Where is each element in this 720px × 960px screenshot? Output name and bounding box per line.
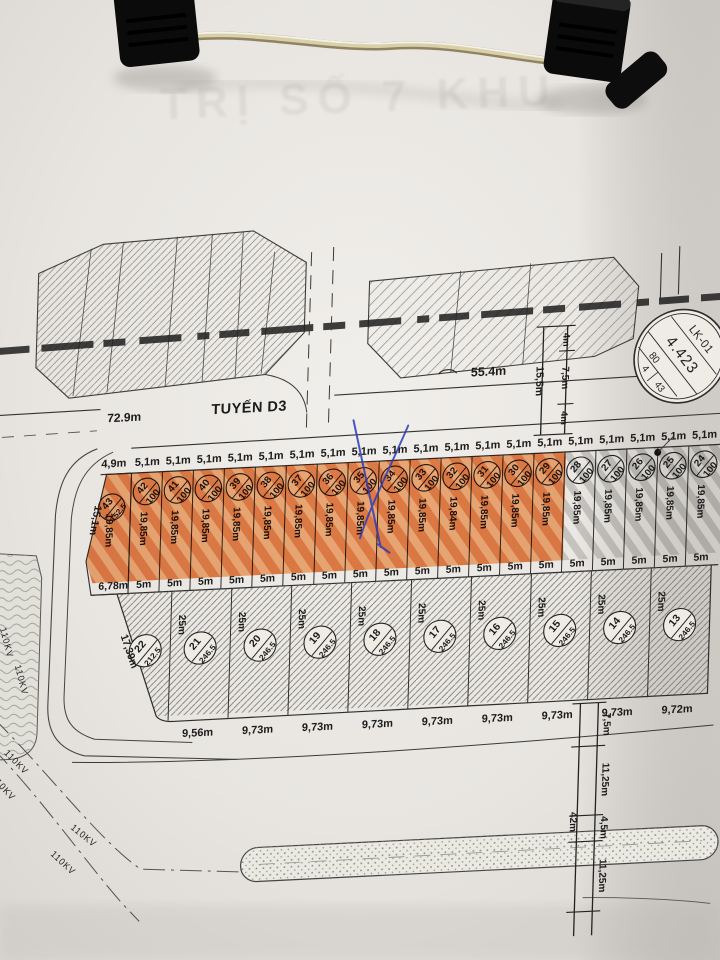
plot-bottom-label: 9,73m — [422, 715, 454, 729]
gray-highlight-streaks — [563, 444, 720, 560]
clip-right-pad — [542, 0, 631, 83]
plot-width-label: 5,1m — [351, 445, 377, 458]
bottom-shadow — [0, 905, 720, 960]
plot-depth-label: 25m — [655, 591, 667, 612]
plot-bottom-label: 9,72m — [661, 703, 693, 717]
photo-of-site-plan: TRỊ SỐ 7 KHU 72.9m TUYẾN D3 55 — [0, 0, 720, 960]
plot-width-label: 4,9m — [101, 457, 127, 470]
plot-depth-label: 25m — [176, 615, 188, 636]
east-seg-label: 4,5m — [597, 816, 609, 839]
plot-width-label: 5,1m — [475, 439, 501, 452]
plot-width-label: 5,1m — [537, 436, 563, 449]
plot-width-label: 5,1m — [197, 453, 223, 466]
clip-left-pad — [112, 0, 200, 68]
plot-width-label: 5,1m — [692, 428, 718, 441]
plot-bottom-label: 9,73m — [242, 724, 274, 738]
road-length-label: 72.9m — [107, 410, 141, 426]
plot-width-label: 5,1m — [599, 433, 625, 446]
plan-canvas: TRỊ SỐ 7 KHU 72.9m TUYẾN D3 55 — [0, 0, 720, 960]
plot-width-label: 5,1m — [506, 438, 532, 451]
plot-width-label: 5,1m — [444, 441, 470, 454]
plot-depth-label: 25m — [415, 603, 427, 624]
plot-width-label: 5,1m — [413, 442, 439, 455]
plot-bottom-label: 9,56m — [182, 726, 214, 740]
plot-depth-label: 25m — [355, 606, 367, 627]
plot-width-label: 5,1m — [320, 447, 346, 460]
east-seg-label: 11,25m — [596, 859, 608, 893]
svg-text:55.4m: 55.4m — [471, 364, 507, 380]
plot-width-label: 5,1m — [258, 450, 284, 463]
cross-seg-label: 7,5m — [559, 366, 571, 389]
plot-depth-label: 25m — [535, 597, 547, 618]
plot-depth-label: 25m — [295, 609, 307, 630]
cross-seg-label: 4m — [560, 333, 571, 347]
plot-width-label: 5,1m — [289, 448, 315, 461]
plot-depth-label: 25m — [475, 600, 487, 621]
plot-width-label: 5,1m — [568, 435, 594, 448]
plot-depth-label: 25m — [595, 594, 607, 615]
plot-depth-label: 25m — [236, 612, 248, 633]
plot-bottom-label: 9,73m — [601, 706, 633, 720]
plot-bottom-label: 9,73m — [302, 721, 334, 735]
plot-width-label: 5,1m — [228, 451, 254, 464]
plot-bottom-label: 9,73m — [362, 718, 394, 732]
cross-seg-label: 4m — [558, 411, 569, 425]
plot-width-label: 5,1m — [630, 432, 656, 445]
plot-width-label: 5,1m — [166, 454, 192, 467]
plot-width-label: 5,1m — [135, 456, 161, 469]
plot-bottom-label: 9,73m — [482, 712, 514, 726]
east-total-label: 42m — [567, 812, 579, 833]
east-seg-label: 11,25m — [599, 762, 611, 796]
cross-total-label: 15,5m — [533, 366, 546, 396]
plot-bottom-label: 9,73m — [541, 709, 573, 723]
